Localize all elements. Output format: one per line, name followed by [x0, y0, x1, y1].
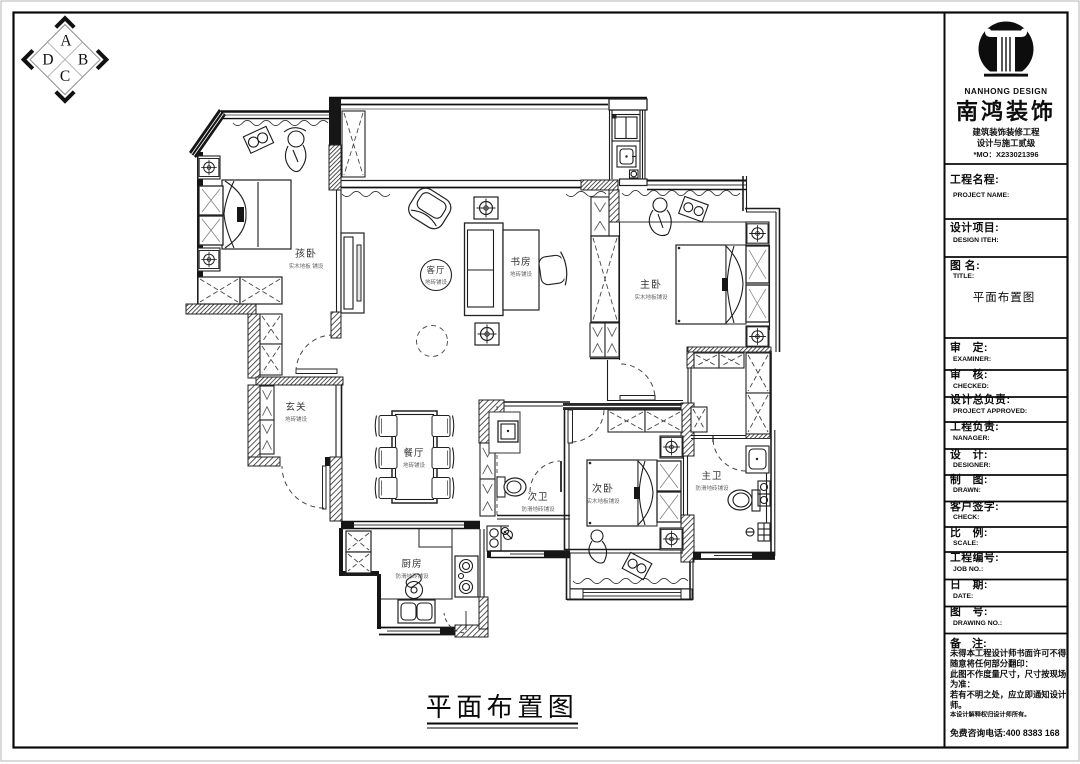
svg-text:DRAWN:: DRAWN: [953, 487, 981, 494]
svg-text:DESIGN ITEH:: DESIGN ITEH: [953, 237, 999, 244]
svg-text:PROJECT APPROVED:: PROJECT APPROVED: [953, 408, 1027, 415]
svg-text:JOB NO.:: JOB NO.: [953, 566, 983, 573]
svg-text:日 期:: 日 期: [950, 577, 988, 591]
svg-text:A: A [60, 33, 72, 50]
svg-text:DESIGNER:: DESIGNER: [953, 462, 991, 469]
svg-text:次卫: 次卫 [527, 491, 548, 503]
svg-text:D: D [42, 52, 53, 69]
svg-text:本设计解释权归设计师所有。: 本设计解释权归设计师所有。 [950, 711, 1030, 719]
svg-text:平面布置图: 平面布置图 [973, 291, 1036, 304]
svg-text:设 计:: 设 计: [950, 447, 988, 461]
svg-text:比 例:: 比 例: [950, 525, 988, 539]
svg-text:防滑地砖铺设: 防滑地砖铺设 [395, 572, 429, 580]
svg-text:设计与施工贰级: 设计与施工贰级 [977, 138, 1036, 148]
svg-text:实木地板铺设: 实木地板铺设 [586, 497, 620, 505]
svg-text:厨房: 厨房 [401, 558, 422, 570]
svg-text:图 号:: 图 号: [950, 605, 988, 618]
svg-text:地砖铺设: 地砖铺设 [510, 270, 533, 278]
svg-text:建筑装饰装修工程: 建筑装饰装修工程 [972, 127, 1041, 137]
svg-text:次卧: 次卧 [592, 482, 614, 495]
svg-text:客户签字:: 客户签字: [949, 499, 999, 513]
svg-text:审 定:: 审 定: [950, 340, 988, 354]
svg-text:若有不明之处，应立即通知设计: 若有不明之处，应立即通知设计 [949, 690, 1067, 700]
svg-text:随意将任何部分翻印：: 随意将任何部分翻印： [950, 658, 1033, 668]
svg-text:地砖铺设: 地砖铺设 [403, 461, 426, 469]
svg-text:客厅: 客厅 [426, 265, 445, 275]
svg-text:图 名:: 图 名: [950, 258, 980, 272]
svg-text:CHECK:: CHECK: [953, 514, 979, 521]
svg-text:地砖铺设: 地砖铺设 [285, 415, 308, 423]
svg-text:TITLE:: TITLE: [953, 273, 974, 280]
svg-text:B: B [78, 52, 88, 69]
svg-text:实木地板铺设: 实木地板铺设 [634, 293, 668, 301]
svg-text:南鸿装饰: 南鸿装饰 [956, 99, 1056, 124]
svg-text:师。: 师。 [950, 700, 967, 710]
svg-text:NANAGER:: NANAGER: [953, 435, 990, 442]
svg-text:SCALE:: SCALE: [953, 540, 978, 547]
svg-text:防滑地砖铺设: 防滑地砖铺设 [521, 505, 555, 513]
svg-text:地砖铺设: 地砖铺设 [425, 278, 448, 286]
svg-text:*MO：X233021396: *MO：X233021396 [973, 150, 1038, 159]
svg-text:制 图:: 制 图: [950, 472, 988, 486]
svg-text:EXAMINER:: EXAMINER: [953, 356, 991, 363]
svg-text:餐厅: 餐厅 [403, 447, 424, 459]
svg-text:工程编号:: 工程编号: [950, 550, 999, 564]
svg-text:未得本工程设计师书面许可不得: 未得本工程设计师书面许可不得 [949, 648, 1067, 658]
svg-text:DATE:: DATE: [953, 593, 973, 600]
svg-text:玄关: 玄关 [285, 401, 306, 413]
svg-text:实木地板 铺设: 实木地板 铺设 [289, 262, 324, 270]
svg-text:防滑地砖铺设: 防滑地砖铺设 [695, 484, 729, 492]
svg-text:孩卧: 孩卧 [295, 247, 317, 260]
svg-text:免费咨询电话:400 8383 168: 免费咨询电话:400 8383 168 [950, 727, 1060, 738]
svg-text:工程负责:: 工程负责: [950, 419, 999, 433]
svg-text:为准：: 为准： [950, 679, 975, 689]
svg-text:工程名程:: 工程名程: [950, 172, 999, 186]
svg-text:C: C [60, 68, 70, 85]
svg-text:主卫: 主卫 [701, 470, 722, 482]
svg-text:设计项目:: 设计项目: [950, 220, 999, 234]
svg-text:书房: 书房 [510, 256, 531, 268]
svg-text:CHECKED:: CHECKED: [953, 383, 989, 390]
svg-text:此图不作度量尺寸，尺寸按现场: 此图不作度量尺寸，尺寸按现场 [950, 669, 1066, 679]
svg-text:平面布置图: 平面布置图 [426, 692, 579, 722]
svg-text:审 核:: 审 核: [950, 367, 988, 381]
svg-text:主卧: 主卧 [640, 278, 662, 291]
svg-text:NANHONG DESIGN: NANHONG DESIGN [965, 87, 1048, 96]
svg-text:PROJECT NAME:: PROJECT NAME: [953, 192, 1009, 199]
svg-text:设计总负责:: 设计总负责: [950, 392, 1011, 406]
svg-text:DRAWING NO.:: DRAWING NO.: [953, 620, 1002, 627]
